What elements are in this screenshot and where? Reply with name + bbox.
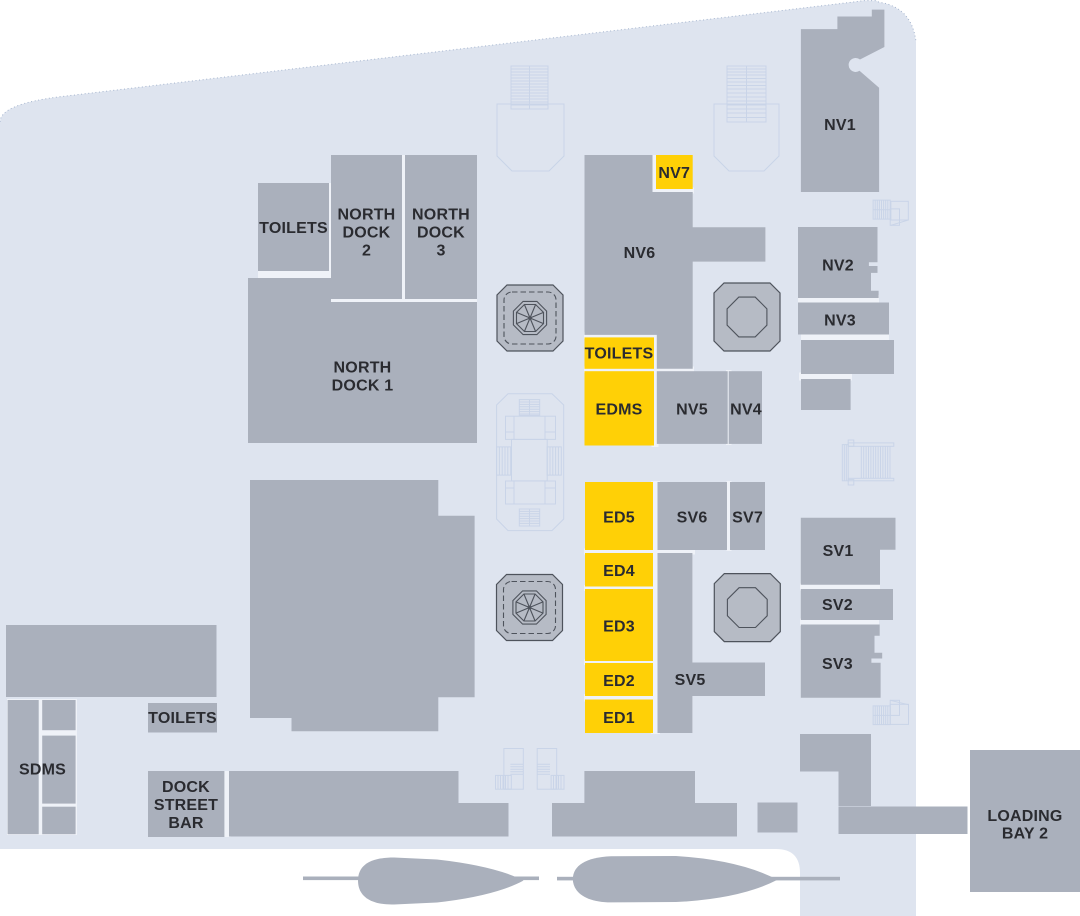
svg-text:BAY 2: BAY 2	[1002, 826, 1048, 843]
svg-text:NORTH: NORTH	[338, 207, 396, 224]
svg-text:ED3: ED3	[603, 619, 635, 636]
svg-text:NV7: NV7	[658, 165, 690, 182]
svg-text:TOILETS: TOILETS	[585, 346, 654, 363]
svg-text:NV6: NV6	[624, 245, 656, 262]
svg-text:LOADING: LOADING	[987, 808, 1062, 825]
svg-text:NV4: NV4	[730, 402, 762, 419]
svg-text:NV2: NV2	[822, 258, 854, 275]
svg-text:NORTH: NORTH	[334, 360, 392, 377]
svg-text:NV1: NV1	[824, 117, 856, 134]
svg-text:NORTH: NORTH	[412, 207, 470, 224]
svg-text:DOCK 1: DOCK 1	[332, 378, 394, 395]
svg-text:STREET: STREET	[154, 797, 218, 814]
svg-text:ED2: ED2	[603, 673, 635, 690]
svg-text:TOILETS: TOILETS	[148, 710, 217, 727]
svg-text:BAR: BAR	[168, 815, 204, 832]
svg-text:SDMS: SDMS	[19, 762, 66, 779]
svg-text:SV5: SV5	[675, 672, 706, 689]
svg-text:SV7: SV7	[732, 510, 763, 527]
svg-text:3: 3	[436, 243, 445, 260]
svg-text:SV6: SV6	[677, 510, 708, 527]
svg-text:ED1: ED1	[603, 710, 635, 727]
svg-text:TOILETS: TOILETS	[259, 220, 328, 237]
svg-text:ED5: ED5	[603, 510, 635, 527]
svg-text:SV3: SV3	[822, 656, 853, 673]
svg-text:SV2: SV2	[822, 597, 853, 614]
svg-text:NV5: NV5	[676, 402, 708, 419]
svg-text:SV1: SV1	[823, 543, 854, 560]
svg-text:ED4: ED4	[603, 563, 635, 580]
svg-text:DOCK: DOCK	[162, 779, 210, 796]
svg-text:DOCK: DOCK	[343, 225, 391, 242]
svg-text:2: 2	[362, 243, 371, 260]
svg-text:EDMS: EDMS	[595, 402, 642, 419]
svg-text:NV3: NV3	[824, 313, 856, 330]
svg-text:DOCK: DOCK	[417, 225, 465, 242]
